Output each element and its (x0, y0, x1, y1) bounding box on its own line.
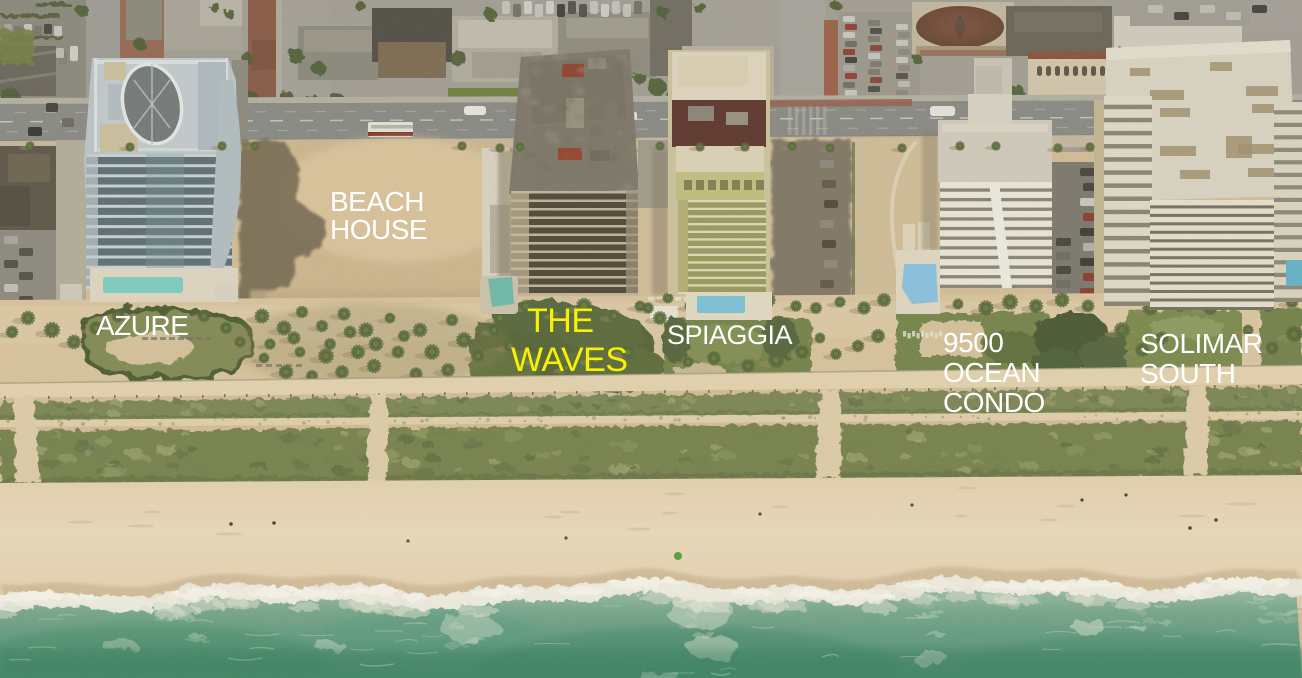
svg-text:AZURE: AZURE (96, 310, 188, 341)
svg-text:9500: 9500 (943, 327, 1003, 358)
svg-text:SOUTH: SOUTH (1140, 358, 1236, 389)
svg-text:WAVES: WAVES (511, 341, 628, 379)
svg-text:HOUSE: HOUSE (330, 214, 427, 245)
svg-text:SPIAGGIA: SPIAGGIA (667, 320, 793, 350)
svg-text:THE: THE (527, 302, 594, 340)
svg-text:SOLIMAR: SOLIMAR (1140, 328, 1263, 359)
svg-text:CONDO: CONDO (943, 387, 1045, 418)
svg-text:OCEAN: OCEAN (943, 357, 1040, 388)
svg-text:BEACH: BEACH (330, 186, 424, 217)
